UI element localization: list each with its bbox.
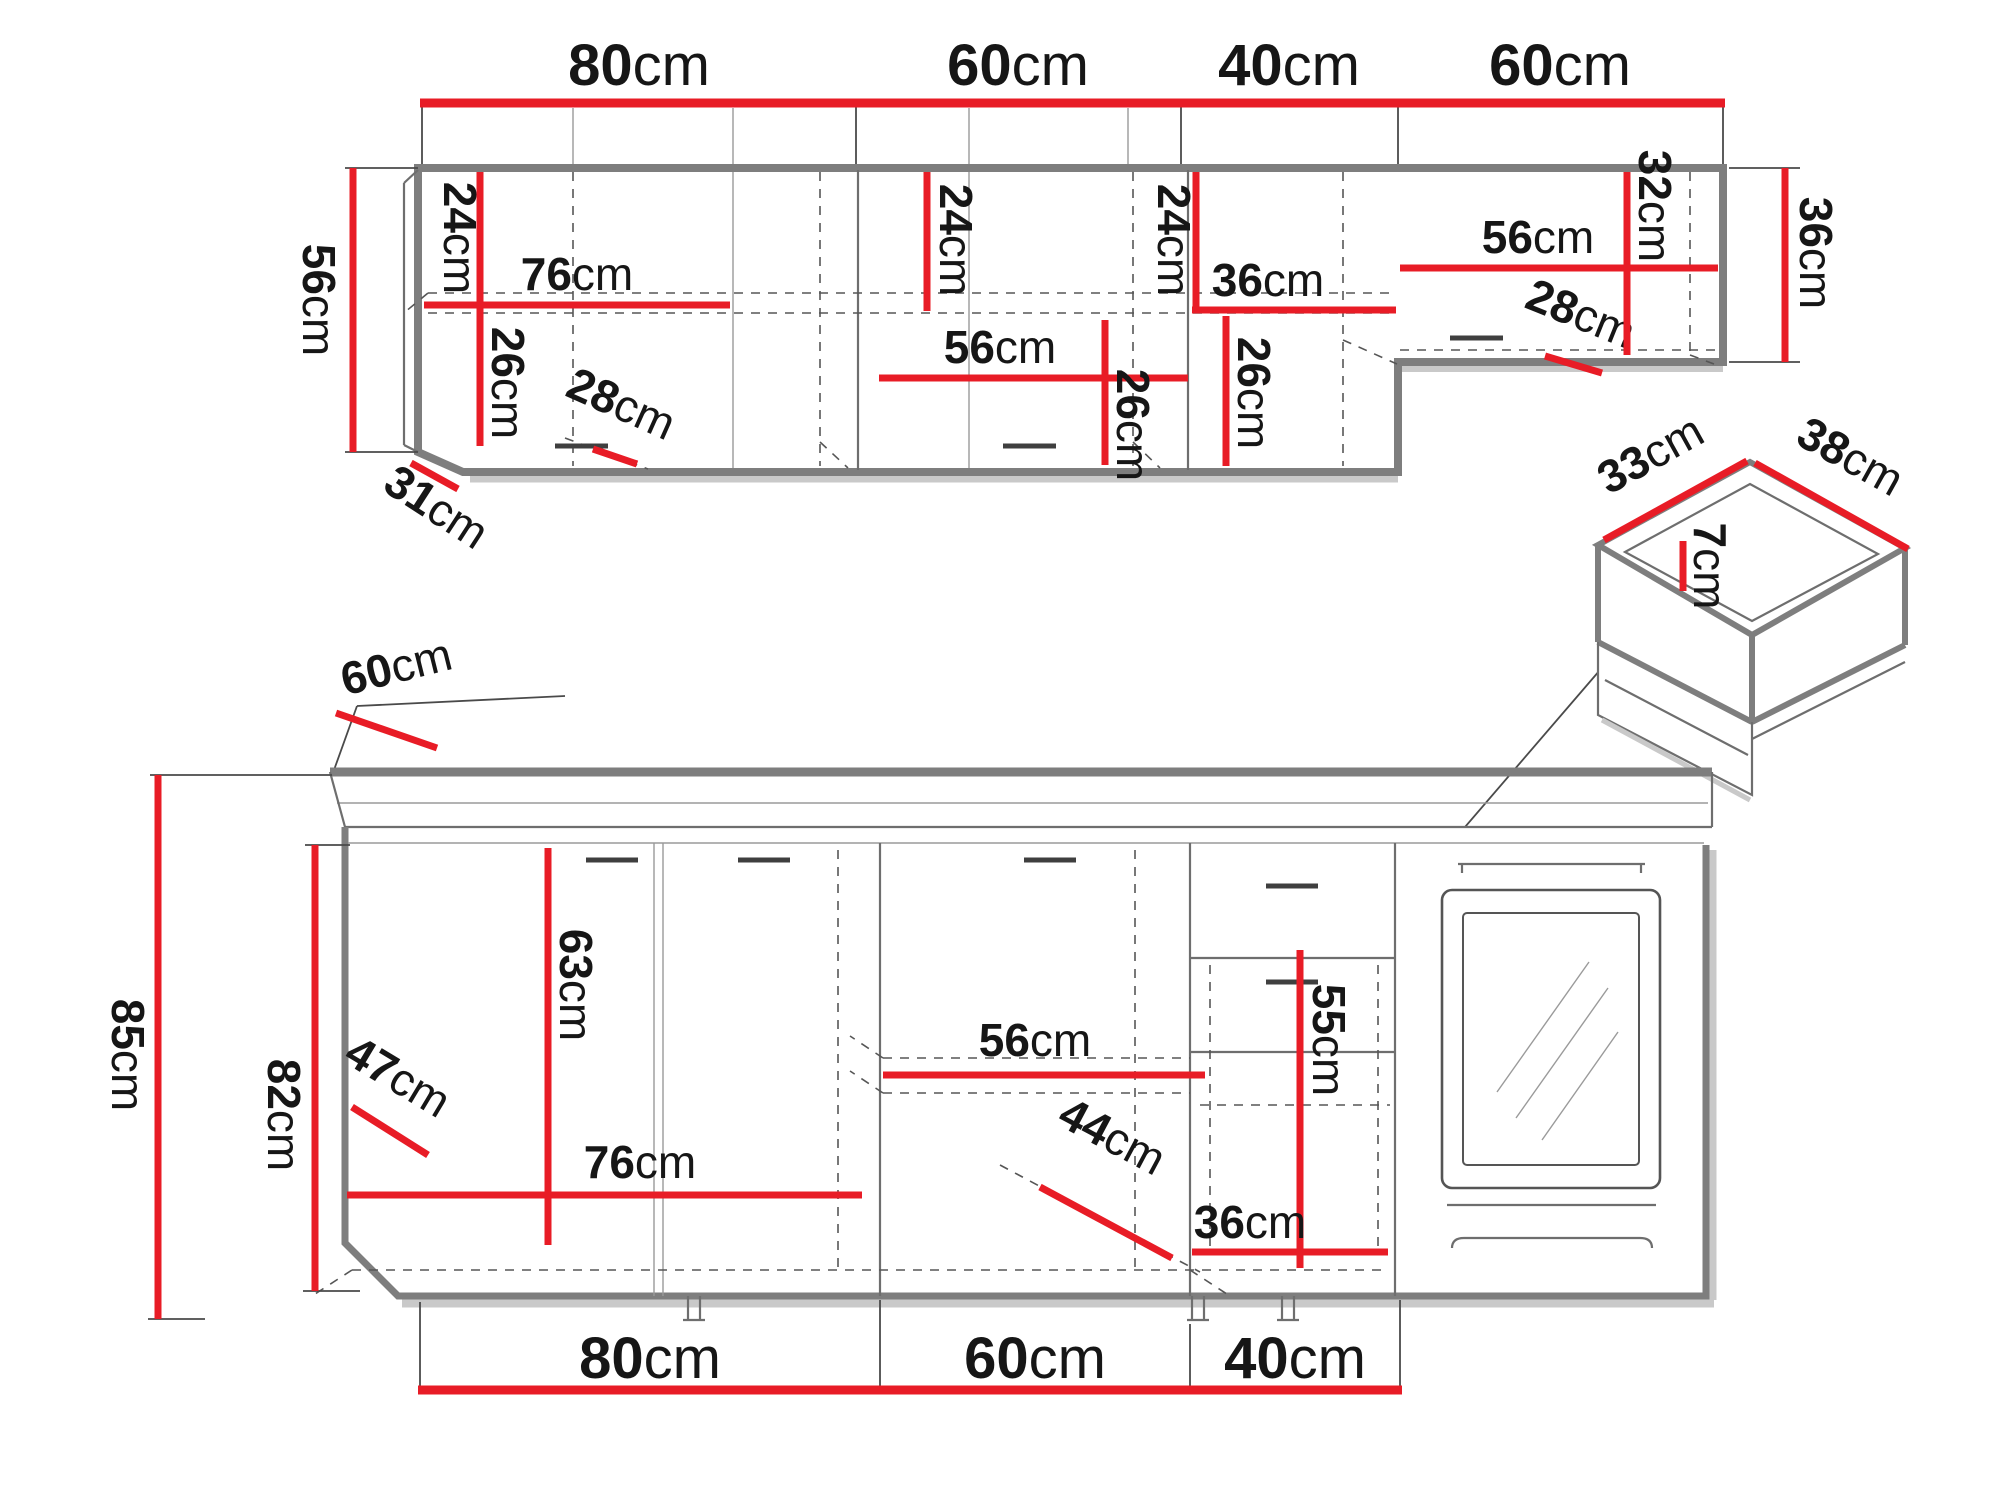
lower-dimension-line: 80cm 60cm 40cm (418, 1300, 1402, 1391)
upper-d-inner-width-label: 56cm (1482, 211, 1595, 263)
upper-b-shelf-top-label: 24cm (930, 184, 982, 297)
upper-width-label-2: 60cm (947, 33, 1089, 98)
cabinet-dimension-drawing: 80cm 60cm 40cm 60cm (0, 0, 2000, 1500)
lower-c-inner-height-label: 55cm (1303, 984, 1355, 1097)
lower-b-inner-width-label: 56cm (979, 1014, 1092, 1066)
lower-c-inner-width-label: 36cm (1194, 1196, 1307, 1248)
upper-width-label-1: 80cm (568, 33, 710, 98)
diagram-page: 80cm 60cm 40cm 60cm (0, 0, 2000, 1500)
lower-width-label-1: 80cm (579, 1326, 721, 1391)
lower-width-label-3: 40cm (1224, 1326, 1366, 1391)
upper-width-label-4: 60cm (1489, 33, 1631, 98)
counter-depth-label: 60cm (335, 628, 457, 706)
countertop: 60cm (330, 628, 1712, 827)
upper-dimension-line: 80cm 60cm 40cm 60cm (420, 33, 1725, 168)
upper-right-height-label: 36cm (1790, 197, 1842, 310)
drawer-box (1598, 462, 1905, 800)
upper-b-inner-width-label: 56cm (944, 321, 1057, 373)
lower-width-label-2: 60cm (964, 1326, 1106, 1391)
upper-a-inner-width-label: 76cm (521, 248, 634, 300)
upper-c-shelf-top-label: 24cm (1148, 184, 1200, 297)
upper-b-shelf-bottom-label: 26cm (1107, 369, 1159, 482)
lower-a-inner-width-label: 76cm (584, 1136, 697, 1188)
upper-d-inner-height-label: 32cm (1629, 150, 1681, 263)
lower-carcass-height-label: 82cm (258, 1059, 310, 1172)
upper-c-inner-width-label: 36cm (1212, 254, 1325, 306)
upper-width-label-3: 40cm (1218, 33, 1360, 98)
lower-cabinet-diagram: 60cm (102, 628, 1714, 1391)
lower-total-height-label: 85cm (102, 999, 154, 1112)
upper-a-shelf-top-label: 24cm (434, 182, 486, 295)
upper-c-shelf-bottom-label: 26cm (1228, 337, 1280, 450)
upper-a-shelf-bottom-label: 26cm (482, 327, 534, 440)
upper-left-height-label: 56cm (293, 244, 345, 357)
drawer-inner-height-label: 7cm (1684, 523, 1736, 610)
lower-door-height-label: 63cm (550, 929, 602, 1042)
